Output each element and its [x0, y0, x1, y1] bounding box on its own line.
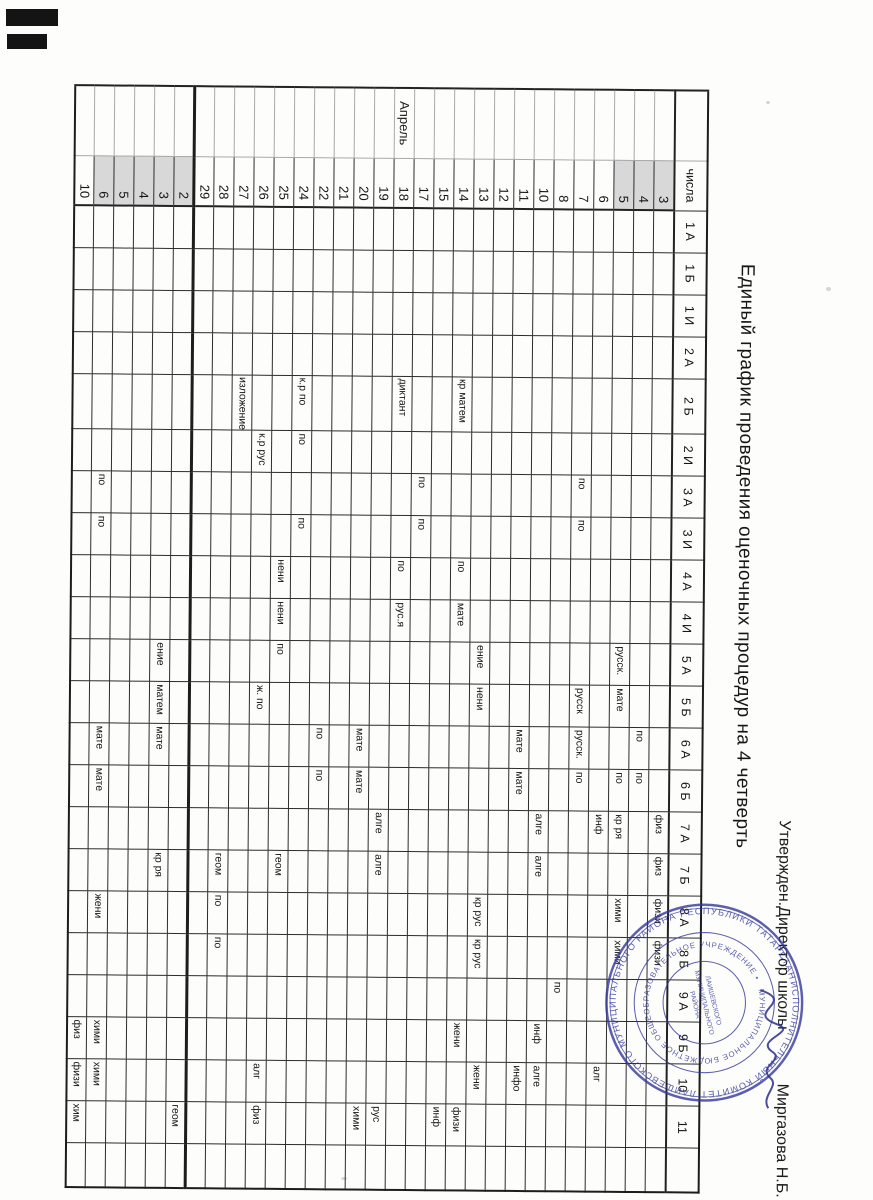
schedule-cell [546, 1105, 566, 1147]
schedule-cell [510, 643, 530, 685]
schedule-cell [549, 727, 569, 769]
schedule-cell [309, 809, 329, 851]
schedule-cell [326, 1145, 346, 1189]
schedule-cell [614, 210, 634, 252]
schedule-cell [427, 1020, 447, 1062]
schedule-cell [527, 937, 547, 979]
schedule-cell [130, 598, 150, 640]
schedule-cell [489, 727, 509, 769]
schedule-cell: ж. по [250, 683, 270, 725]
class-header-4A: 4 А [671, 560, 704, 602]
schedule-cell [306, 1145, 326, 1189]
schedule-cell [427, 978, 447, 1020]
schedule-cell [529, 727, 549, 769]
schedule-cell [354, 208, 374, 250]
schedule-cell [528, 895, 548, 937]
schedule-cell [211, 556, 231, 598]
schedule-cell [413, 292, 433, 334]
schedule-cell [429, 768, 449, 810]
date-cell: 14 [454, 158, 474, 208]
schedule-cell [71, 555, 91, 597]
schedule-cell [310, 641, 330, 683]
schedule-cell [491, 559, 511, 601]
schedule-cell [588, 854, 608, 896]
schedule-cell [269, 725, 289, 767]
schedule-cell [311, 557, 331, 599]
schedule-cell [409, 726, 429, 768]
schedule-cell [371, 558, 391, 600]
schedule-cell [194, 206, 214, 248]
schedule-cell [213, 290, 233, 332]
schedule-cell [472, 474, 492, 516]
schedule-cell [193, 290, 213, 332]
schedule-cell [212, 374, 232, 430]
class-header-1A: 1 А [674, 210, 707, 252]
schedule-cell [447, 936, 467, 978]
date-cell: 4 [634, 160, 654, 210]
schedule-cell [430, 600, 450, 642]
schedule-cell [353, 292, 373, 334]
month-cell [275, 87, 296, 157]
schedule-cell [349, 809, 369, 851]
schedule-cell [548, 895, 568, 937]
schedule-cell: рус.я [390, 600, 410, 642]
schedule-cell [389, 726, 409, 768]
schedule-cell [167, 934, 187, 976]
schedule-cell [188, 850, 208, 892]
schedule-cell [310, 599, 330, 641]
schedule-cell [73, 331, 93, 373]
schedule-cell [289, 767, 309, 809]
schedule-cell [91, 555, 111, 597]
schedule-cell [552, 433, 572, 475]
schedule-cell [367, 936, 387, 978]
schedule-cell [214, 206, 234, 248]
schedule-cell: по [208, 892, 228, 934]
schedule-cell [230, 598, 250, 640]
schedule-cell [129, 766, 149, 808]
month-cell [535, 89, 556, 159]
class-header-1B: 1 Б [673, 252, 706, 294]
schedule-cell [346, 1145, 366, 1189]
schedule-cell [410, 600, 430, 642]
schedule-cell [332, 375, 352, 431]
schedule-cell [109, 807, 129, 849]
date-cell: 3 [654, 160, 674, 210]
schedule-cell [493, 293, 513, 335]
schedule-cell [234, 206, 254, 248]
schedule-cell [566, 1105, 586, 1147]
schedule-cell [613, 252, 633, 294]
schedule-cell [471, 516, 491, 558]
schedule-cell [408, 894, 428, 936]
schedule-cell [332, 431, 352, 473]
schedule-cell [346, 1061, 366, 1103]
schedule-cell [651, 560, 671, 602]
schedule-cell [153, 332, 173, 374]
schedule-cell [514, 209, 534, 251]
schedule-cell [267, 977, 287, 1019]
schedule-cell [326, 1103, 346, 1145]
schedule-cell [72, 471, 92, 513]
schedule-cell [253, 333, 273, 375]
schedule-cell [229, 724, 249, 766]
class-header-4I: 4 И [670, 602, 703, 644]
schedule-cell [511, 517, 531, 559]
schedule-cell [649, 770, 669, 812]
schedule-cell [632, 434, 652, 476]
schedule-cell [192, 472, 212, 514]
schedule-cell [368, 894, 388, 936]
schedule-cell [567, 937, 587, 979]
schedule-cell [590, 686, 610, 728]
schedule-cell [352, 376, 372, 432]
month-cell [575, 89, 596, 159]
schedule-cell [86, 1101, 106, 1143]
schedule-cell [626, 1106, 646, 1148]
schedule-cell [367, 978, 387, 1020]
schedule-cell: нени [470, 684, 490, 726]
schedule-cell [486, 1147, 506, 1191]
schedule-cell [169, 808, 189, 850]
schedule-cell [212, 430, 232, 472]
schedule-cell [407, 978, 427, 1020]
schedule-cell [189, 724, 209, 766]
schedule-cell [393, 250, 413, 292]
schedule-cell [406, 1146, 426, 1190]
schedule-cell [312, 431, 332, 473]
schedule-cell [270, 683, 290, 725]
schedule-cell [247, 977, 267, 1019]
schedule-cell [486, 1105, 506, 1147]
schedule-cell [653, 336, 673, 378]
schedule-cell [88, 849, 108, 891]
schedule-cell [392, 432, 412, 474]
schedule-cell: кр ря [609, 812, 629, 854]
date-cell: 2 [174, 156, 194, 206]
schedule-cell [350, 683, 370, 725]
schedule-cell [110, 681, 130, 723]
schedule-cell [593, 294, 613, 336]
schedule-cell [330, 683, 350, 725]
schedule-cell [148, 892, 168, 934]
schedule-cell [210, 682, 230, 724]
schedule-cell [407, 1020, 427, 1062]
schedule-cell [213, 248, 233, 290]
schedule-cell: по [571, 517, 591, 559]
schedule-cell [490, 643, 510, 685]
schedule-cell [367, 1020, 387, 1062]
schedule-cell [550, 643, 570, 685]
schedule-cell [170, 598, 190, 640]
schedule-cell [386, 1104, 406, 1146]
schedule-cell [651, 518, 671, 560]
month-cell [295, 87, 316, 157]
schedule-cell [172, 430, 192, 472]
month-cell [655, 90, 676, 160]
schedule-cell [554, 209, 574, 251]
schedule-cell [431, 516, 451, 558]
schedule-cell [406, 1062, 426, 1104]
schedule-cell [288, 851, 308, 893]
date-cell: 19 [374, 158, 394, 208]
schedule-cell [152, 472, 172, 514]
month-cell [155, 86, 176, 156]
date-column-header: числа [674, 160, 707, 210]
schedule-cell [166, 1144, 186, 1188]
schedule-cell [68, 891, 88, 933]
schedule-cell [609, 728, 629, 770]
schedule-cell [611, 560, 631, 602]
schedule-cell [427, 936, 447, 978]
schedule-cell [466, 1104, 486, 1146]
schedule-cell: по [451, 558, 471, 600]
schedule-cell [489, 811, 509, 853]
document-sheet: Утвержден.Директор школы Миргазова Н.Б. … [0, 0, 866, 1200]
schedule-cell [308, 851, 328, 893]
schedule-cell [330, 599, 350, 641]
schedule-cell [226, 1102, 246, 1144]
schedule-cell [168, 892, 188, 934]
schedule-cell [288, 893, 308, 935]
schedule-cell [248, 851, 268, 893]
schedule-cell: мате [349, 767, 369, 809]
schedule-cell: хими [346, 1103, 366, 1145]
schedule-cell [286, 1061, 306, 1103]
schedule-cell [126, 1143, 146, 1187]
schedule-cell [192, 374, 212, 430]
schedule-cell [612, 378, 632, 434]
schedule-cell: геом [268, 851, 288, 893]
schedule-cell [366, 1146, 386, 1190]
month-cell [475, 89, 496, 159]
schedule-cell: по [309, 725, 329, 767]
schedule-cell [612, 434, 632, 476]
schedule-cell [267, 935, 287, 977]
schedule-cell: хими [87, 1017, 107, 1059]
date-cell: 22 [314, 157, 334, 207]
schedule-cell [473, 293, 493, 335]
schedule-cell [549, 769, 569, 811]
date-cell: 24 [294, 157, 314, 207]
schedule-cell [90, 639, 110, 681]
schedule-cell [389, 768, 409, 810]
month-cell [355, 88, 376, 158]
schedule-cell [348, 851, 368, 893]
schedule-cell [573, 251, 593, 293]
schedule-cell [311, 515, 331, 557]
schedule-cell [273, 291, 293, 333]
schedule-cell [107, 933, 127, 975]
schedule-cell [472, 377, 492, 433]
schedule-cell [432, 376, 452, 432]
schedule-cell: алг [246, 1061, 266, 1103]
schedule-cell [106, 1059, 126, 1101]
date-cell: 6 [94, 155, 114, 205]
schedule-cell [290, 683, 310, 725]
schedule-cell [292, 473, 312, 515]
schedule-cell [454, 208, 474, 250]
schedule-cell: алге [526, 1063, 546, 1105]
schedule-cell [571, 559, 591, 601]
schedule-cell [414, 208, 434, 250]
schedule-cell [313, 291, 333, 333]
schedule-cell [628, 854, 648, 896]
month-cell [635, 90, 656, 160]
schedule-cell [228, 892, 248, 934]
schedule-cell [113, 331, 133, 373]
schedule-cell: нени [271, 557, 291, 599]
schedule-cell: рус [366, 1104, 386, 1146]
schedule-cell [269, 809, 289, 851]
schedule-cell [393, 334, 413, 376]
schedule-cell [492, 433, 512, 475]
date-cell: 28 [214, 156, 234, 206]
schedule-cell [230, 640, 250, 682]
schedule-cell [513, 335, 533, 377]
page-title: Единый график проведения оценочных проце… [731, 264, 758, 849]
date-cell: 10 [74, 155, 94, 205]
schedule-cell [227, 1018, 247, 1060]
month-cell [235, 86, 256, 156]
schedule-cell [412, 432, 432, 474]
schedule-cell [589, 728, 609, 770]
schedule-cell: по [270, 641, 290, 683]
schedule-cell [366, 1062, 386, 1104]
schedule-cell [527, 979, 547, 1021]
schedule-cell [293, 291, 313, 333]
schedule-cell [131, 556, 151, 598]
schedule-cell [488, 853, 508, 895]
schedule-cell [353, 334, 373, 376]
schedule-cell [347, 977, 367, 1019]
schedule-cell [407, 936, 427, 978]
schedule-cell [433, 334, 453, 376]
schedule-cell [510, 685, 530, 727]
schedule-cell [594, 210, 614, 252]
schedule-cell [266, 1145, 286, 1189]
schedule-cell [70, 597, 90, 639]
schedule-cell [511, 559, 531, 601]
schedule-cell: мате [89, 723, 109, 765]
schedule-cell [207, 976, 227, 1018]
schedule-cell [151, 556, 171, 598]
schedule-cell [314, 207, 334, 249]
schedule-cell [370, 600, 390, 642]
schedule-cell [167, 1018, 187, 1060]
schedule-cell [134, 206, 154, 248]
schedule-cell [412, 376, 432, 432]
schedule-cell [469, 768, 489, 810]
schedule-cell [593, 252, 613, 294]
schedule-cell [133, 332, 153, 374]
month-cell [455, 88, 476, 158]
schedule-cell [189, 808, 209, 850]
schedule-cell [192, 430, 212, 472]
schedule-cell [634, 210, 654, 252]
schedule-cell [168, 850, 188, 892]
schedule-cell [193, 332, 213, 374]
schedule-cell [630, 602, 650, 644]
schedule-cell [550, 601, 570, 643]
class-header-7B: 7 Б [668, 854, 701, 896]
signature [729, 984, 805, 1115]
schedule-cell [530, 601, 550, 643]
schedule-cell [286, 1145, 306, 1189]
schedule-cell [252, 473, 272, 515]
schedule-cell [331, 557, 351, 599]
schedule-cell [330, 641, 350, 683]
schedule-cell: хими [86, 1059, 106, 1101]
date-cell: 6 [594, 160, 614, 210]
schedule-cell [233, 332, 253, 374]
schedule-cell [490, 601, 510, 643]
schedule-cell [128, 850, 148, 892]
schedule-cell: инф [589, 812, 609, 854]
schedule-cell [229, 808, 249, 850]
schedule-cell: инфо [506, 1063, 526, 1105]
schedule-cell [494, 209, 514, 251]
schedule-cell: жени [88, 891, 108, 933]
schedule-cell [549, 811, 569, 853]
schedule-cell [369, 726, 389, 768]
schedule-cell [533, 335, 553, 377]
schedule-cell [386, 1146, 406, 1190]
date-cell: 27 [234, 156, 254, 206]
schedule-cell [227, 934, 247, 976]
schedule-cell [274, 207, 294, 249]
schedule-cell [453, 292, 473, 334]
schedule-cell [613, 294, 633, 336]
schedule-cell [206, 1102, 226, 1144]
schedule-cell [147, 976, 167, 1018]
schedule-cell [127, 975, 147, 1017]
schedule-cell [446, 1062, 466, 1104]
schedule-cell: алге [528, 853, 548, 895]
schedule-cell [409, 768, 429, 810]
schedule-cell [469, 726, 489, 768]
month-cell [135, 86, 156, 156]
schedule-cell [92, 373, 112, 429]
schedule-cell [593, 336, 613, 378]
schedule-cell [227, 976, 247, 1018]
schedule-cell [190, 598, 210, 640]
schedule-cell: физи [446, 1104, 466, 1146]
schedule-cell [352, 431, 372, 473]
class-header-2A: 2 А [673, 336, 706, 378]
schedule-cell [493, 251, 513, 293]
schedule-cell [67, 975, 87, 1017]
schedule-cell [331, 515, 351, 557]
month-cell [175, 86, 196, 156]
schedule-cell: изложение [232, 374, 252, 430]
schedule-cell [69, 723, 89, 765]
date-cell: 17 [414, 158, 434, 208]
schedule-cell [534, 209, 554, 251]
schedule-cell [406, 1104, 426, 1146]
schedule-cell [246, 1145, 266, 1189]
schedule-cell [606, 1148, 626, 1192]
schedule-cell [209, 724, 229, 766]
schedule-cell [153, 248, 173, 290]
schedule-cell [652, 434, 672, 476]
date-cell: 3 [154, 156, 174, 206]
schedule-cell [113, 289, 133, 331]
schedule-cell [352, 473, 372, 515]
schedule-cell [467, 1020, 487, 1062]
schedule-cell: по [609, 770, 629, 812]
schedule-cell [312, 473, 332, 515]
